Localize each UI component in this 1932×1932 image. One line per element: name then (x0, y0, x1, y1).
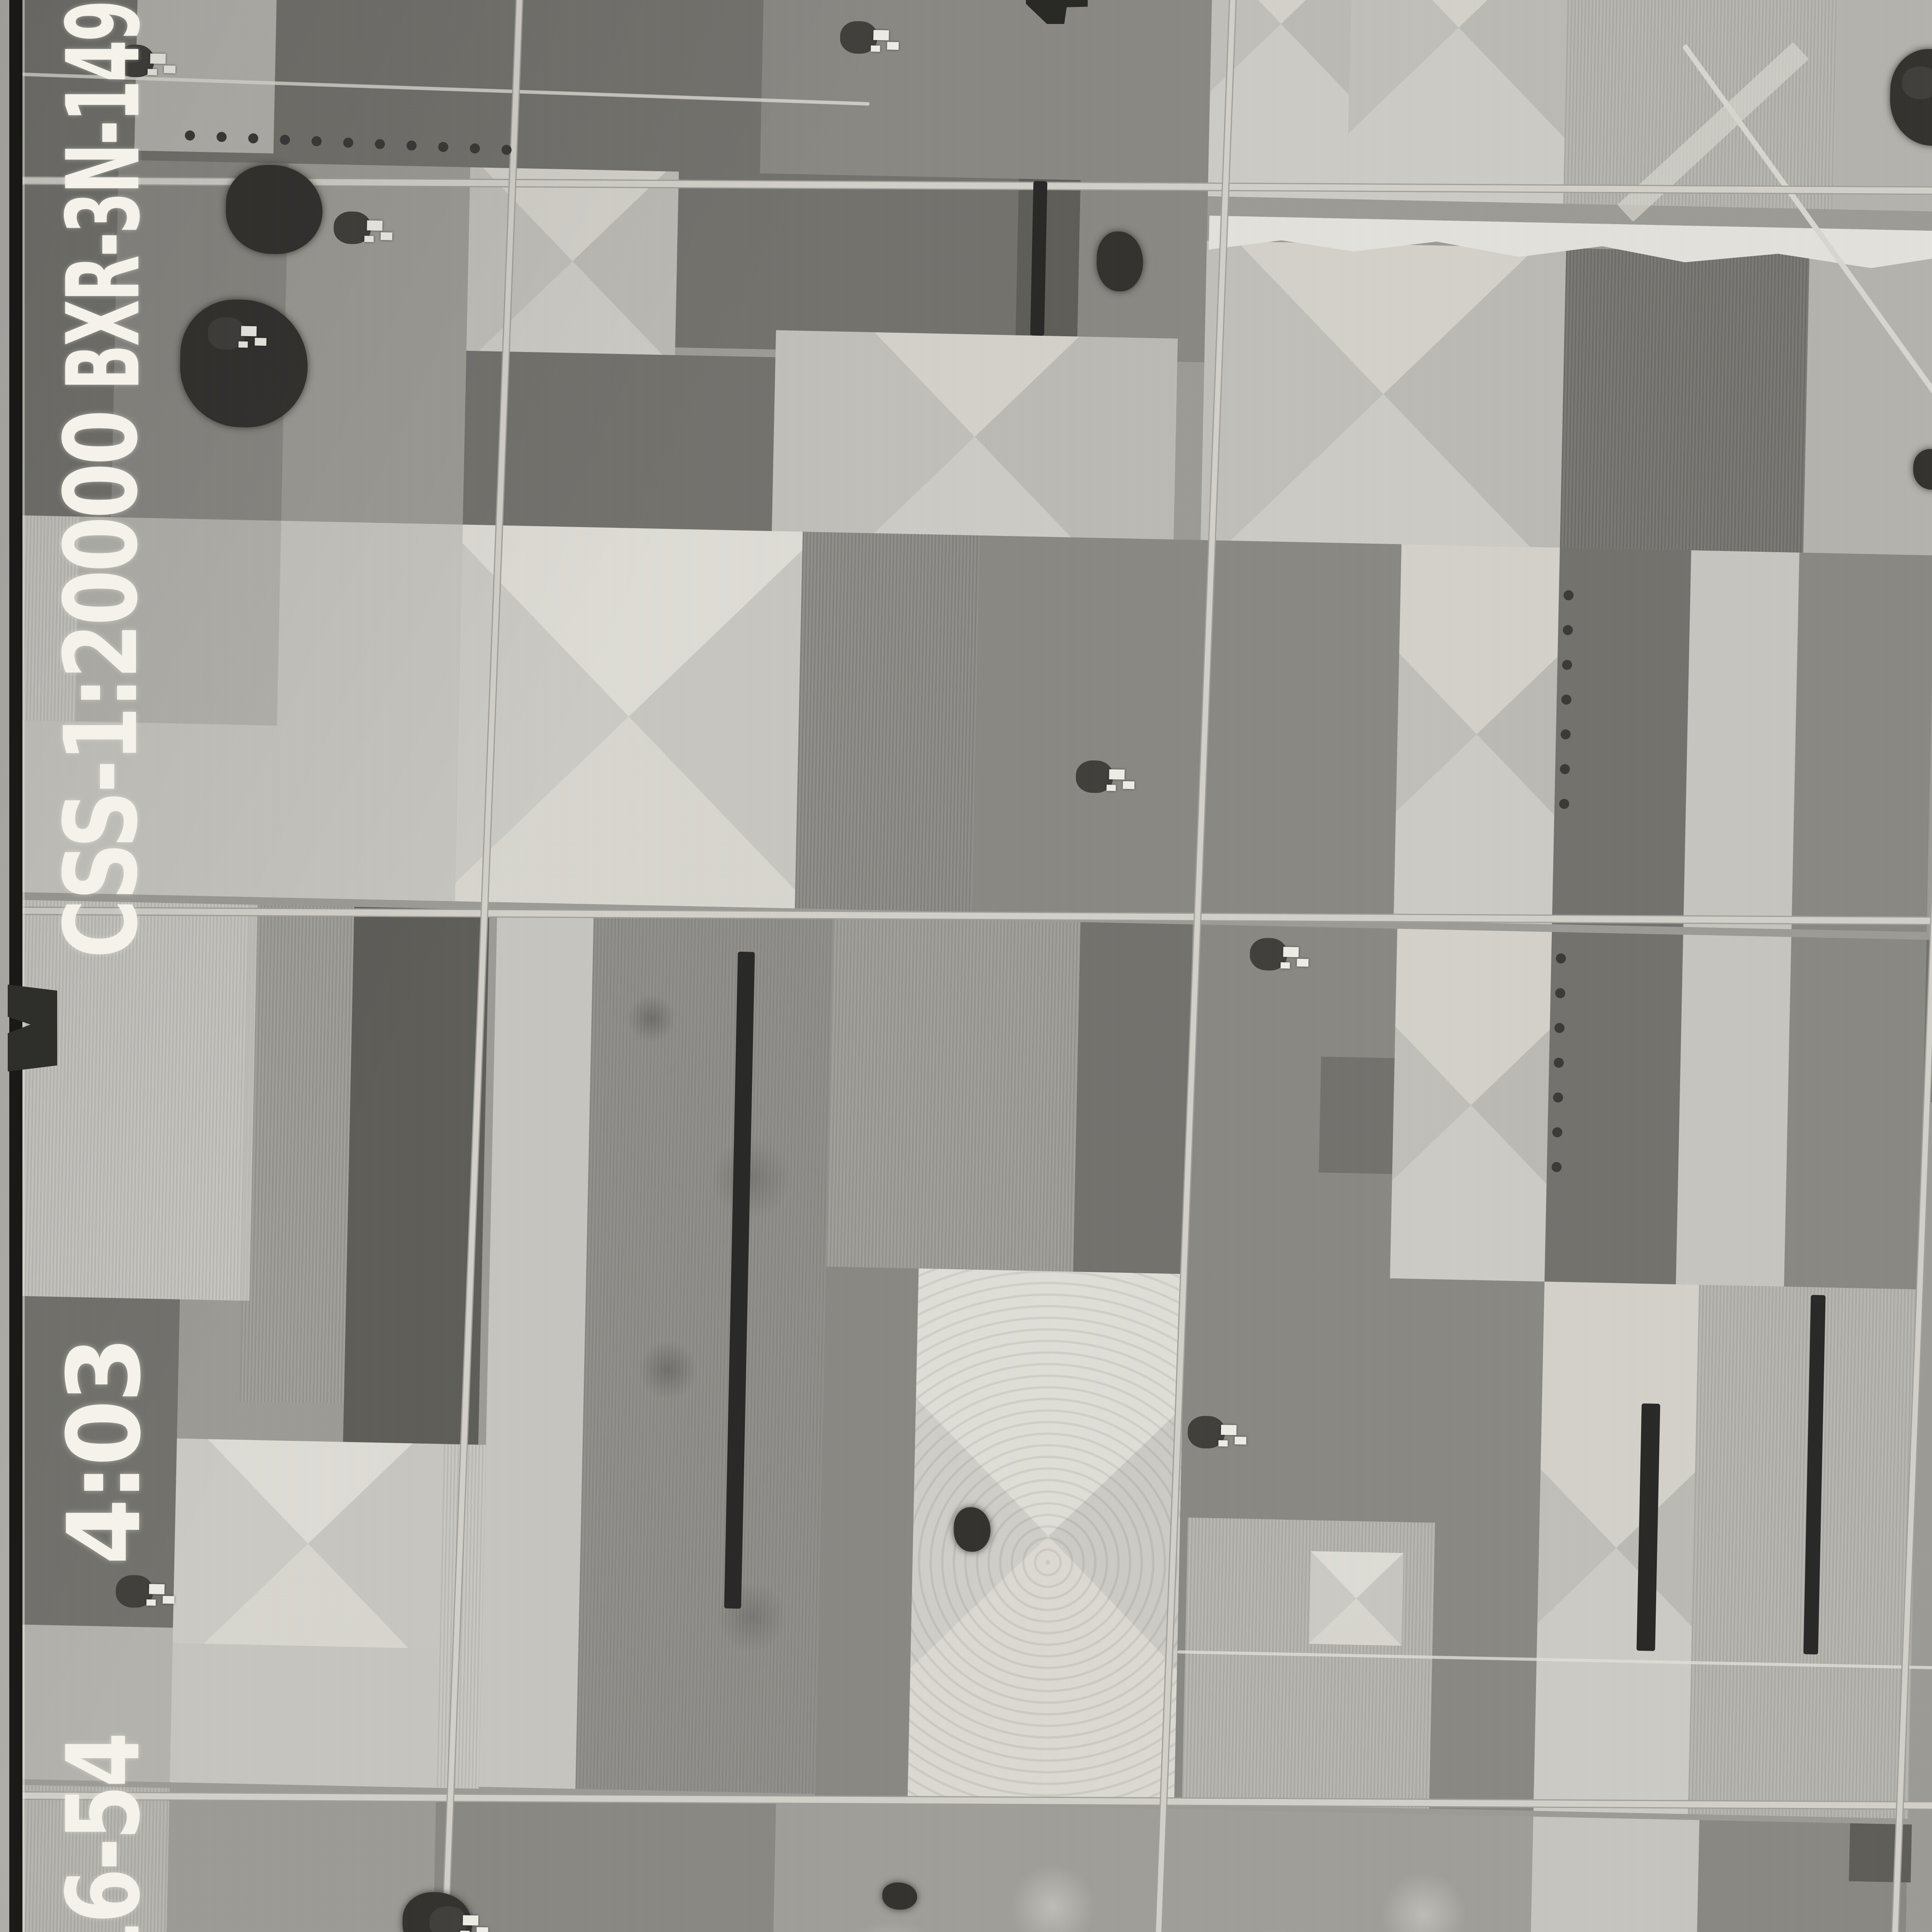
farmstead-trees (429, 1906, 467, 1932)
farm-building (873, 30, 889, 41)
farm-building (1221, 1425, 1237, 1435)
farm-field (908, 1269, 1189, 1803)
farm-field (772, 330, 1178, 544)
margin-annotation-time: 4:03 (46, 1339, 163, 1565)
farmstead (1249, 935, 1324, 995)
aerial-photograph: BXR-3N-149 CSS-1:20000 4:03 8-16-54 (0, 0, 1932, 1932)
farm-field (1523, 1816, 1699, 1932)
farm-field (455, 525, 803, 908)
farmstead (333, 209, 408, 268)
farm-building (241, 326, 257, 337)
farm-building (164, 65, 175, 73)
farm-field (1560, 248, 1810, 553)
farm-field (1784, 937, 1927, 1289)
farm-field (1347, 0, 1571, 204)
farmstead (1075, 758, 1150, 817)
farm-building (1123, 781, 1134, 789)
farm-building (146, 1599, 156, 1605)
farm-building (460, 1930, 469, 1932)
farm-field (463, 351, 776, 531)
farm-field (170, 1643, 439, 1788)
farm-building (367, 220, 383, 231)
film-edge-left-line (22, 0, 25, 1932)
farm-field (1563, 0, 1841, 209)
farm-field (1390, 929, 1552, 1282)
farmstead (1901, 64, 1932, 123)
farm-field (159, 1788, 436, 1932)
farm-field (1015, 179, 1080, 356)
farm-field (1544, 932, 1683, 1284)
farm-building (1281, 962, 1290, 968)
farm-building (364, 236, 374, 242)
farm-building (1107, 785, 1116, 791)
farm-field (173, 1439, 444, 1649)
farm-field (1163, 1809, 1533, 1932)
farm-field (1193, 540, 1401, 921)
farm-field (1534, 1282, 1699, 1814)
farmstead-trees (1902, 66, 1932, 99)
farm-field (273, 521, 463, 901)
farm-building (149, 1584, 165, 1594)
farmstead (839, 19, 914, 78)
margin-annotation-series-scale: CSS-1:20000 (43, 412, 160, 958)
farm-field (1077, 180, 1208, 362)
margin-annotation-film-id: BXR-3N-149 (46, 2, 162, 390)
margin-annotation-date: 8-16-54 (46, 1735, 162, 1932)
farmstead (207, 315, 282, 374)
farm-building (238, 341, 248, 347)
farmstead (1187, 1413, 1262, 1473)
film-edge-left-black (9, 0, 22, 1932)
farm-building (887, 42, 899, 50)
farm-field (1688, 1285, 1919, 1819)
farm-building (1235, 1437, 1246, 1445)
farm-field (765, 1801, 1174, 1932)
farm-building (871, 45, 880, 51)
farm-field (575, 912, 833, 1794)
farm-field (1676, 935, 1791, 1287)
farm-building (381, 232, 392, 240)
farm-building (255, 338, 266, 346)
farm-field (466, 167, 679, 355)
farm-building (476, 1927, 488, 1932)
farm-field (760, 0, 1215, 189)
farm-field (479, 910, 594, 1789)
photo-terrain-plane (0, 0, 1932, 1932)
farm-field (1791, 553, 1932, 932)
farm-field (973, 536, 1201, 917)
farm-building (163, 1596, 174, 1604)
farm-building (1283, 947, 1299, 957)
farmstead (115, 1572, 189, 1632)
farm-field (1073, 922, 1192, 1274)
farm-field (675, 172, 1019, 354)
farm-field (1394, 544, 1560, 924)
farm-field (826, 917, 1081, 1272)
farm-field (240, 905, 354, 1403)
farm-field (795, 532, 980, 912)
farm-building (1109, 769, 1125, 780)
farm-field (815, 1267, 919, 1798)
farm-building (463, 1915, 479, 1925)
farm-field (1309, 1551, 1403, 1646)
farm-field (1552, 548, 1691, 927)
farm-building (1297, 959, 1308, 967)
farm-field (1201, 241, 1566, 548)
farmstead (429, 1904, 503, 1932)
film-edge-left-gray (0, 0, 9, 1932)
farm-building (1218, 1440, 1228, 1446)
farm-field (1683, 550, 1799, 929)
